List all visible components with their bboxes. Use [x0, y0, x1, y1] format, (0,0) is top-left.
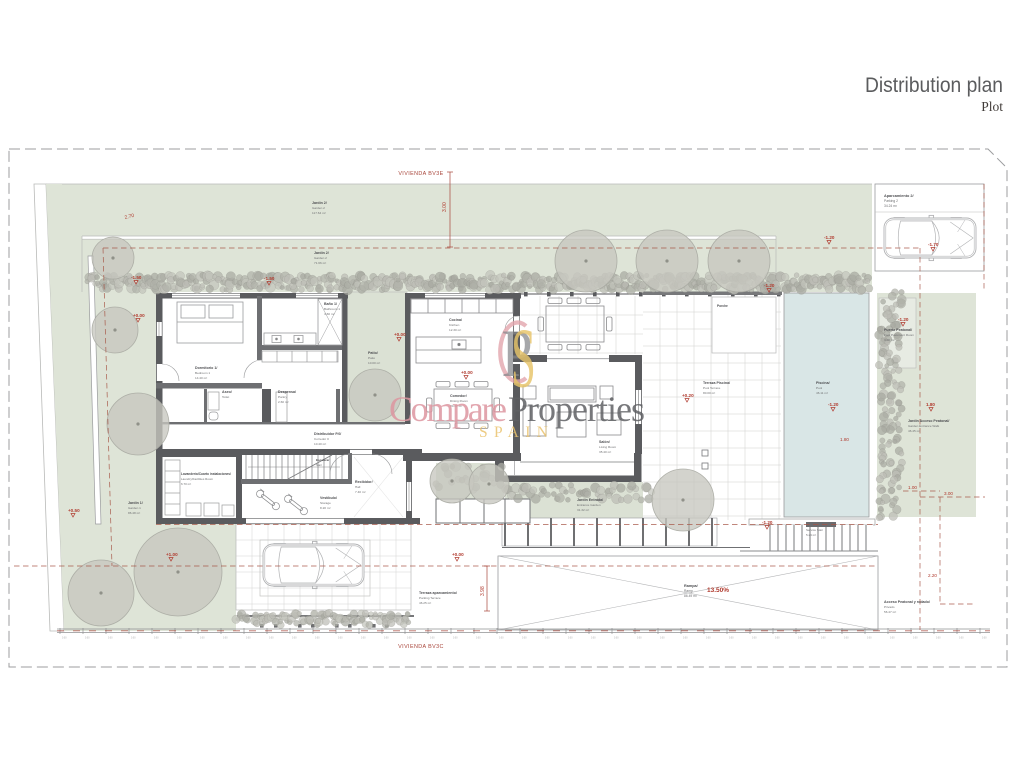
svg-text:Corredor 0: Corredor 0 — [314, 437, 329, 441]
svg-text:0.00: 0.00 — [775, 638, 780, 640]
svg-text:Puerta Peatonal/: Puerta Peatonal/ — [884, 328, 912, 332]
svg-text:+0.50: +0.50 — [68, 508, 80, 513]
svg-text:0.00: 0.00 — [292, 638, 297, 640]
svg-text:Aseo/: Aseo/ — [222, 390, 232, 394]
svg-text:0.00: 0.00 — [200, 638, 205, 640]
svg-text:Toilet: Toilet — [222, 395, 229, 399]
svg-text:0.00: 0.00 — [752, 638, 757, 640]
svg-text:3.98: 3.98 — [480, 586, 486, 596]
svg-text:Terraza Piscina/: Terraza Piscina/ — [703, 381, 730, 385]
svg-text:-1.20: -1.20 — [828, 402, 839, 407]
svg-text:0.00: 0.00 — [913, 638, 918, 640]
svg-text:7.40 m²: 7.40 m² — [355, 490, 366, 494]
svg-text:0.00: 0.00 — [499, 638, 504, 640]
svg-text:Jardín Acceso Peatonal/: Jardín Acceso Peatonal/ — [908, 419, 949, 423]
svg-text:0.00: 0.00 — [154, 638, 159, 640]
svg-text:0.00: 0.00 — [798, 638, 803, 640]
svg-text:+0.00: +0.00 — [394, 332, 406, 337]
svg-text:Garden 2: Garden 2 — [314, 256, 327, 260]
svg-text:0.00: 0.00 — [683, 638, 688, 640]
svg-text:+0.20: +0.20 — [682, 393, 694, 398]
svg-text:0.00: 0.00 — [591, 638, 596, 640]
svg-text:0.00: 0.00 — [637, 638, 642, 640]
svg-text:3.00 m²: 3.00 m² — [884, 338, 895, 342]
svg-text:3.00: 3.00 — [442, 202, 448, 212]
svg-text:Cocina/: Cocina/ — [449, 318, 462, 322]
svg-text:0.00: 0.00 — [936, 638, 941, 640]
svg-text:-1.70: -1.70 — [928, 242, 939, 247]
svg-text:Recibidor/: Recibidor/ — [355, 480, 373, 484]
svg-text:Vestíbulo/: Vestíbulo/ — [320, 496, 337, 500]
svg-text:-1.20: -1.20 — [764, 283, 775, 288]
svg-text:0.00: 0.00 — [706, 638, 711, 640]
svg-text:Jardín 2/: Jardín 2/ — [314, 251, 329, 255]
svg-text:0.00: 0.00 — [315, 638, 320, 640]
svg-text:0.00: 0.00 — [660, 638, 665, 640]
svg-text:0.00: 0.00 — [177, 638, 182, 640]
svg-text:1.00: 1.00 — [908, 485, 917, 490]
svg-text:Jardín 1/: Jardín 1/ — [128, 501, 143, 505]
svg-text:13.50%: 13.50% — [707, 587, 729, 594]
svg-text:71.66 m²: 71.66 m² — [314, 261, 326, 265]
svg-text:Stair: Stair — [316, 463, 322, 467]
svg-text:86.49 m²: 86.49 m² — [684, 594, 698, 598]
svg-text:Hall: Hall — [355, 485, 361, 489]
svg-text:-1.50: -1.50 — [264, 276, 275, 281]
svg-text:0.00: 0.00 — [361, 638, 366, 640]
svg-text:0.00: 0.00 — [545, 638, 550, 640]
svg-text:Garden 1: Garden 1 — [128, 506, 141, 510]
svg-text:Laundry/Facilities Room: Laundry/Facilities Room — [181, 477, 214, 481]
svg-text:+0.00: +0.00 — [452, 552, 464, 557]
svg-text:0.00: 0.00 — [568, 638, 573, 640]
svg-text:Despensa/: Despensa/ — [278, 390, 296, 394]
svg-text:Parking 2: Parking 2 — [884, 199, 898, 203]
svg-text:Bathroom 1: Bathroom 1 — [324, 307, 340, 311]
svg-text:Baño 1/: Baño 1/ — [324, 302, 337, 306]
svg-text:Pool: Pool — [816, 386, 823, 390]
svg-text:5.24 m²: 5.24 m² — [806, 533, 816, 537]
svg-text:0.00: 0.00 — [338, 638, 343, 640]
svg-text:VIVIENDA BV3E: VIVIENDA BV3E — [398, 171, 443, 177]
svg-text:Jardín 2/: Jardín 2/ — [312, 201, 327, 205]
svg-text:Piscina/: Piscina/ — [816, 381, 830, 385]
svg-text:0.00: 0.00 — [476, 638, 481, 640]
svg-text:3.00: 3.00 — [944, 491, 953, 496]
svg-text:Pool Terrace: Pool Terrace — [703, 386, 721, 390]
svg-text:0.00: 0.00 — [844, 638, 849, 640]
svg-text:31.32 m²: 31.32 m² — [577, 508, 589, 512]
svg-text:0.00: 0.00 — [407, 638, 412, 640]
svg-text:Aparcamiento 2/: Aparcamiento 2/ — [884, 194, 914, 198]
svg-text:1.80: 1.80 — [926, 402, 935, 407]
svg-text:+0.00: +0.00 — [461, 370, 473, 375]
svg-text:0.00: 0.00 — [729, 638, 734, 640]
svg-text:Service Stair: Service Stair — [806, 528, 823, 532]
svg-text:+1.00: +1.00 — [166, 552, 178, 557]
svg-text:0.00: 0.00 — [982, 638, 987, 640]
svg-text:117.64 m²: 117.64 m² — [312, 211, 326, 215]
svg-text:Garden 2: Garden 2 — [312, 206, 325, 210]
svg-text:Jardín Entrada/: Jardín Entrada/ — [577, 498, 603, 502]
svg-text:0.00: 0.00 — [821, 638, 826, 640]
svg-text:2.60 m²: 2.60 m² — [278, 400, 289, 404]
svg-text:Storage: Storage — [320, 501, 331, 505]
svg-text:Garden Entrance Walk: Garden Entrance Walk — [908, 424, 940, 428]
svg-text:0.00: 0.00 — [269, 638, 274, 640]
svg-text:0.00: 0.00 — [453, 638, 458, 640]
svg-text:10.00 m²: 10.00 m² — [368, 361, 380, 365]
svg-text:Compare: Compare — [389, 389, 507, 429]
svg-text:VIVIENDA BV3C: VIVIENDA BV3C — [398, 644, 444, 650]
svg-text:0.00: 0.00 — [384, 638, 389, 640]
svg-text:34.24 m²: 34.24 m² — [884, 204, 898, 208]
svg-text:Kitchen: Kitchen — [449, 323, 460, 327]
svg-text:0.00: 0.00 — [108, 638, 113, 640]
svg-text:Properties: Properties — [508, 389, 645, 429]
svg-text:Pantry: Pantry — [278, 395, 287, 399]
svg-text:2.20: 2.20 — [928, 573, 937, 578]
svg-text:0.00: 0.00 — [522, 638, 527, 640]
svg-text:Distribuidor P.0/: Distribuidor P.0/ — [314, 432, 341, 436]
svg-text:-1.20: -1.20 — [898, 317, 909, 322]
svg-text:0.00: 0.00 — [62, 638, 67, 640]
svg-text:Parking Terrace: Parking Terrace — [419, 596, 441, 600]
svg-text:80.00 m²: 80.00 m² — [703, 391, 715, 395]
svg-text:Escalera/: Escalera/ — [316, 458, 329, 462]
svg-text:86.48 m²: 86.48 m² — [128, 511, 140, 515]
svg-text:Foot Pavement Room: Foot Pavement Room — [884, 333, 915, 337]
svg-text:Ramp: Ramp — [684, 589, 693, 593]
svg-text:-1.20: -1.20 — [824, 235, 835, 240]
svg-text:0.00: 0.00 — [959, 638, 964, 640]
svg-text:46.11 m²: 46.11 m² — [816, 391, 828, 395]
svg-text:10.40 m²: 10.40 m² — [314, 442, 326, 446]
svg-text:Living Room: Living Room — [599, 445, 617, 449]
svg-text:Privado: Privado — [884, 605, 895, 609]
svg-text:SPAIN: SPAIN — [479, 424, 554, 441]
svg-text:-1.20: -1.20 — [762, 520, 773, 525]
svg-text:0.00: 0.00 — [614, 638, 619, 640]
svg-text:46.45 m²: 46.45 m² — [908, 429, 920, 433]
svg-text:Dormitorio 1/: Dormitorio 1/ — [195, 366, 217, 370]
svg-text:Terraza aparcamiento/: Terraza aparcamiento/ — [419, 591, 457, 595]
svg-text:Rampa/: Rampa/ — [684, 584, 699, 588]
svg-text:0.00: 0.00 — [85, 638, 90, 640]
svg-text:Acceso Peatonal y rodado/: Acceso Peatonal y rodado/ — [884, 600, 930, 604]
svg-text:12.30 m²: 12.30 m² — [449, 328, 461, 332]
svg-text:Distribution plan: Distribution plan — [865, 74, 1003, 97]
svg-text:+0.00: +0.00 — [133, 313, 145, 318]
svg-text:Plot: Plot — [981, 99, 1003, 114]
svg-text:Entrance Garden: Entrance Garden — [577, 503, 601, 507]
svg-text:0.00: 0.00 — [867, 638, 872, 640]
svg-text:6.70 m²: 6.70 m² — [181, 482, 191, 486]
svg-text:35.40 m²: 35.40 m² — [599, 450, 611, 454]
svg-text:0.00: 0.00 — [223, 638, 228, 640]
svg-text:8.20 m²: 8.20 m² — [320, 506, 331, 510]
svg-text:0.00: 0.00 — [246, 638, 251, 640]
svg-text:Patio: Patio — [368, 356, 375, 360]
svg-text:Lavandería/Cuarto instalacione: Lavandería/Cuarto instalaciones/ — [181, 472, 231, 476]
svg-text:0.00: 0.00 — [131, 638, 136, 640]
svg-text:4.60 m²: 4.60 m² — [324, 312, 335, 316]
svg-text:0.00: 0.00 — [430, 638, 435, 640]
svg-text:Bedroom 1: Bedroom 1 — [195, 371, 210, 375]
svg-text:14.40 m²: 14.40 m² — [195, 376, 207, 380]
svg-text:46.25 m²: 46.25 m² — [419, 601, 431, 605]
svg-text:Porche: Porche — [717, 304, 728, 308]
svg-text:1.80: 1.80 — [840, 437, 849, 442]
svg-text:0.00: 0.00 — [890, 638, 895, 640]
svg-text:-1.50: -1.50 — [131, 275, 142, 280]
svg-text:56.47 m²: 56.47 m² — [884, 610, 896, 614]
svg-text:Salón/: Salón/ — [599, 440, 610, 444]
svg-text:Patio/: Patio/ — [368, 351, 378, 355]
